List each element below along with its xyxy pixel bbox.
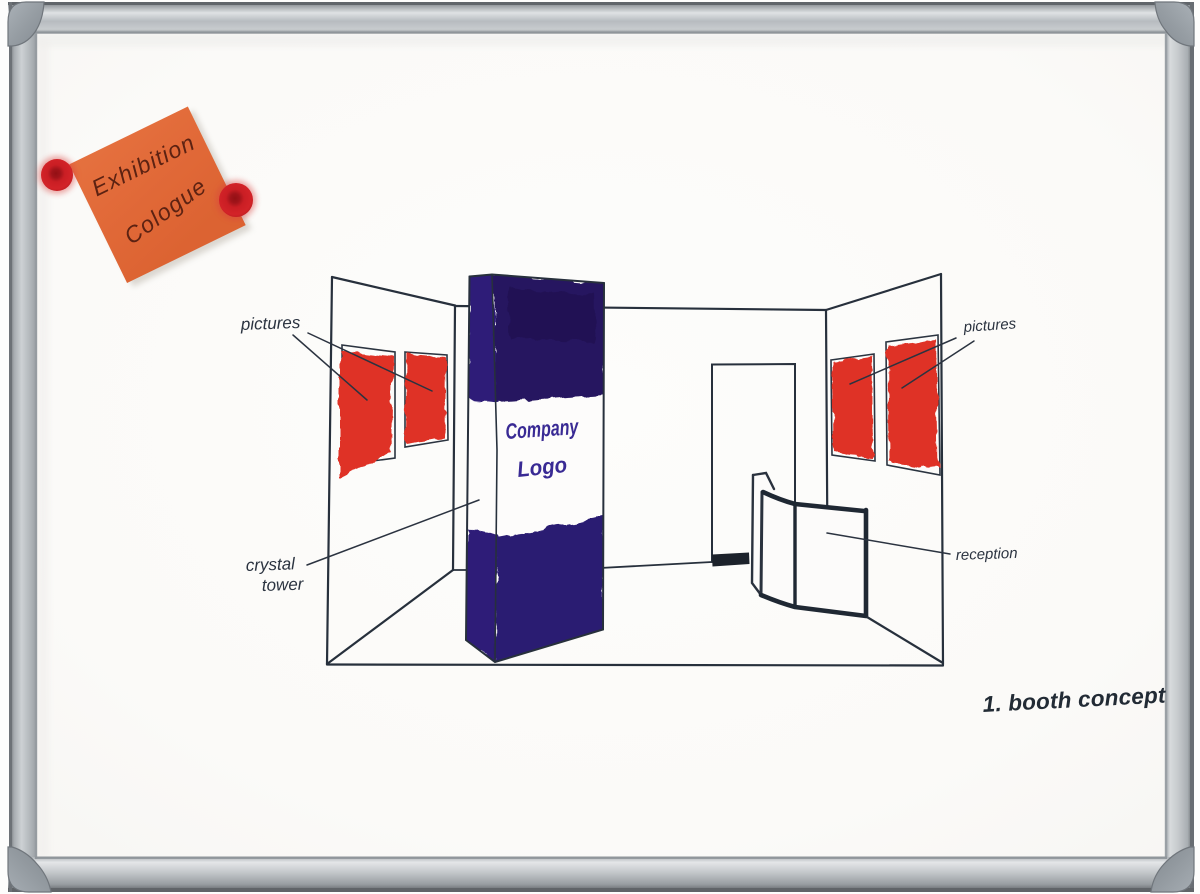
svg-text:Logo: Logo [516, 452, 568, 482]
svg-text:Company: Company [505, 414, 581, 444]
svg-text:pictures: pictures [239, 313, 301, 334]
svg-text:tower: tower [261, 575, 305, 595]
svg-text:reception: reception [956, 545, 1018, 564]
svg-text:crystal: crystal [245, 554, 296, 575]
